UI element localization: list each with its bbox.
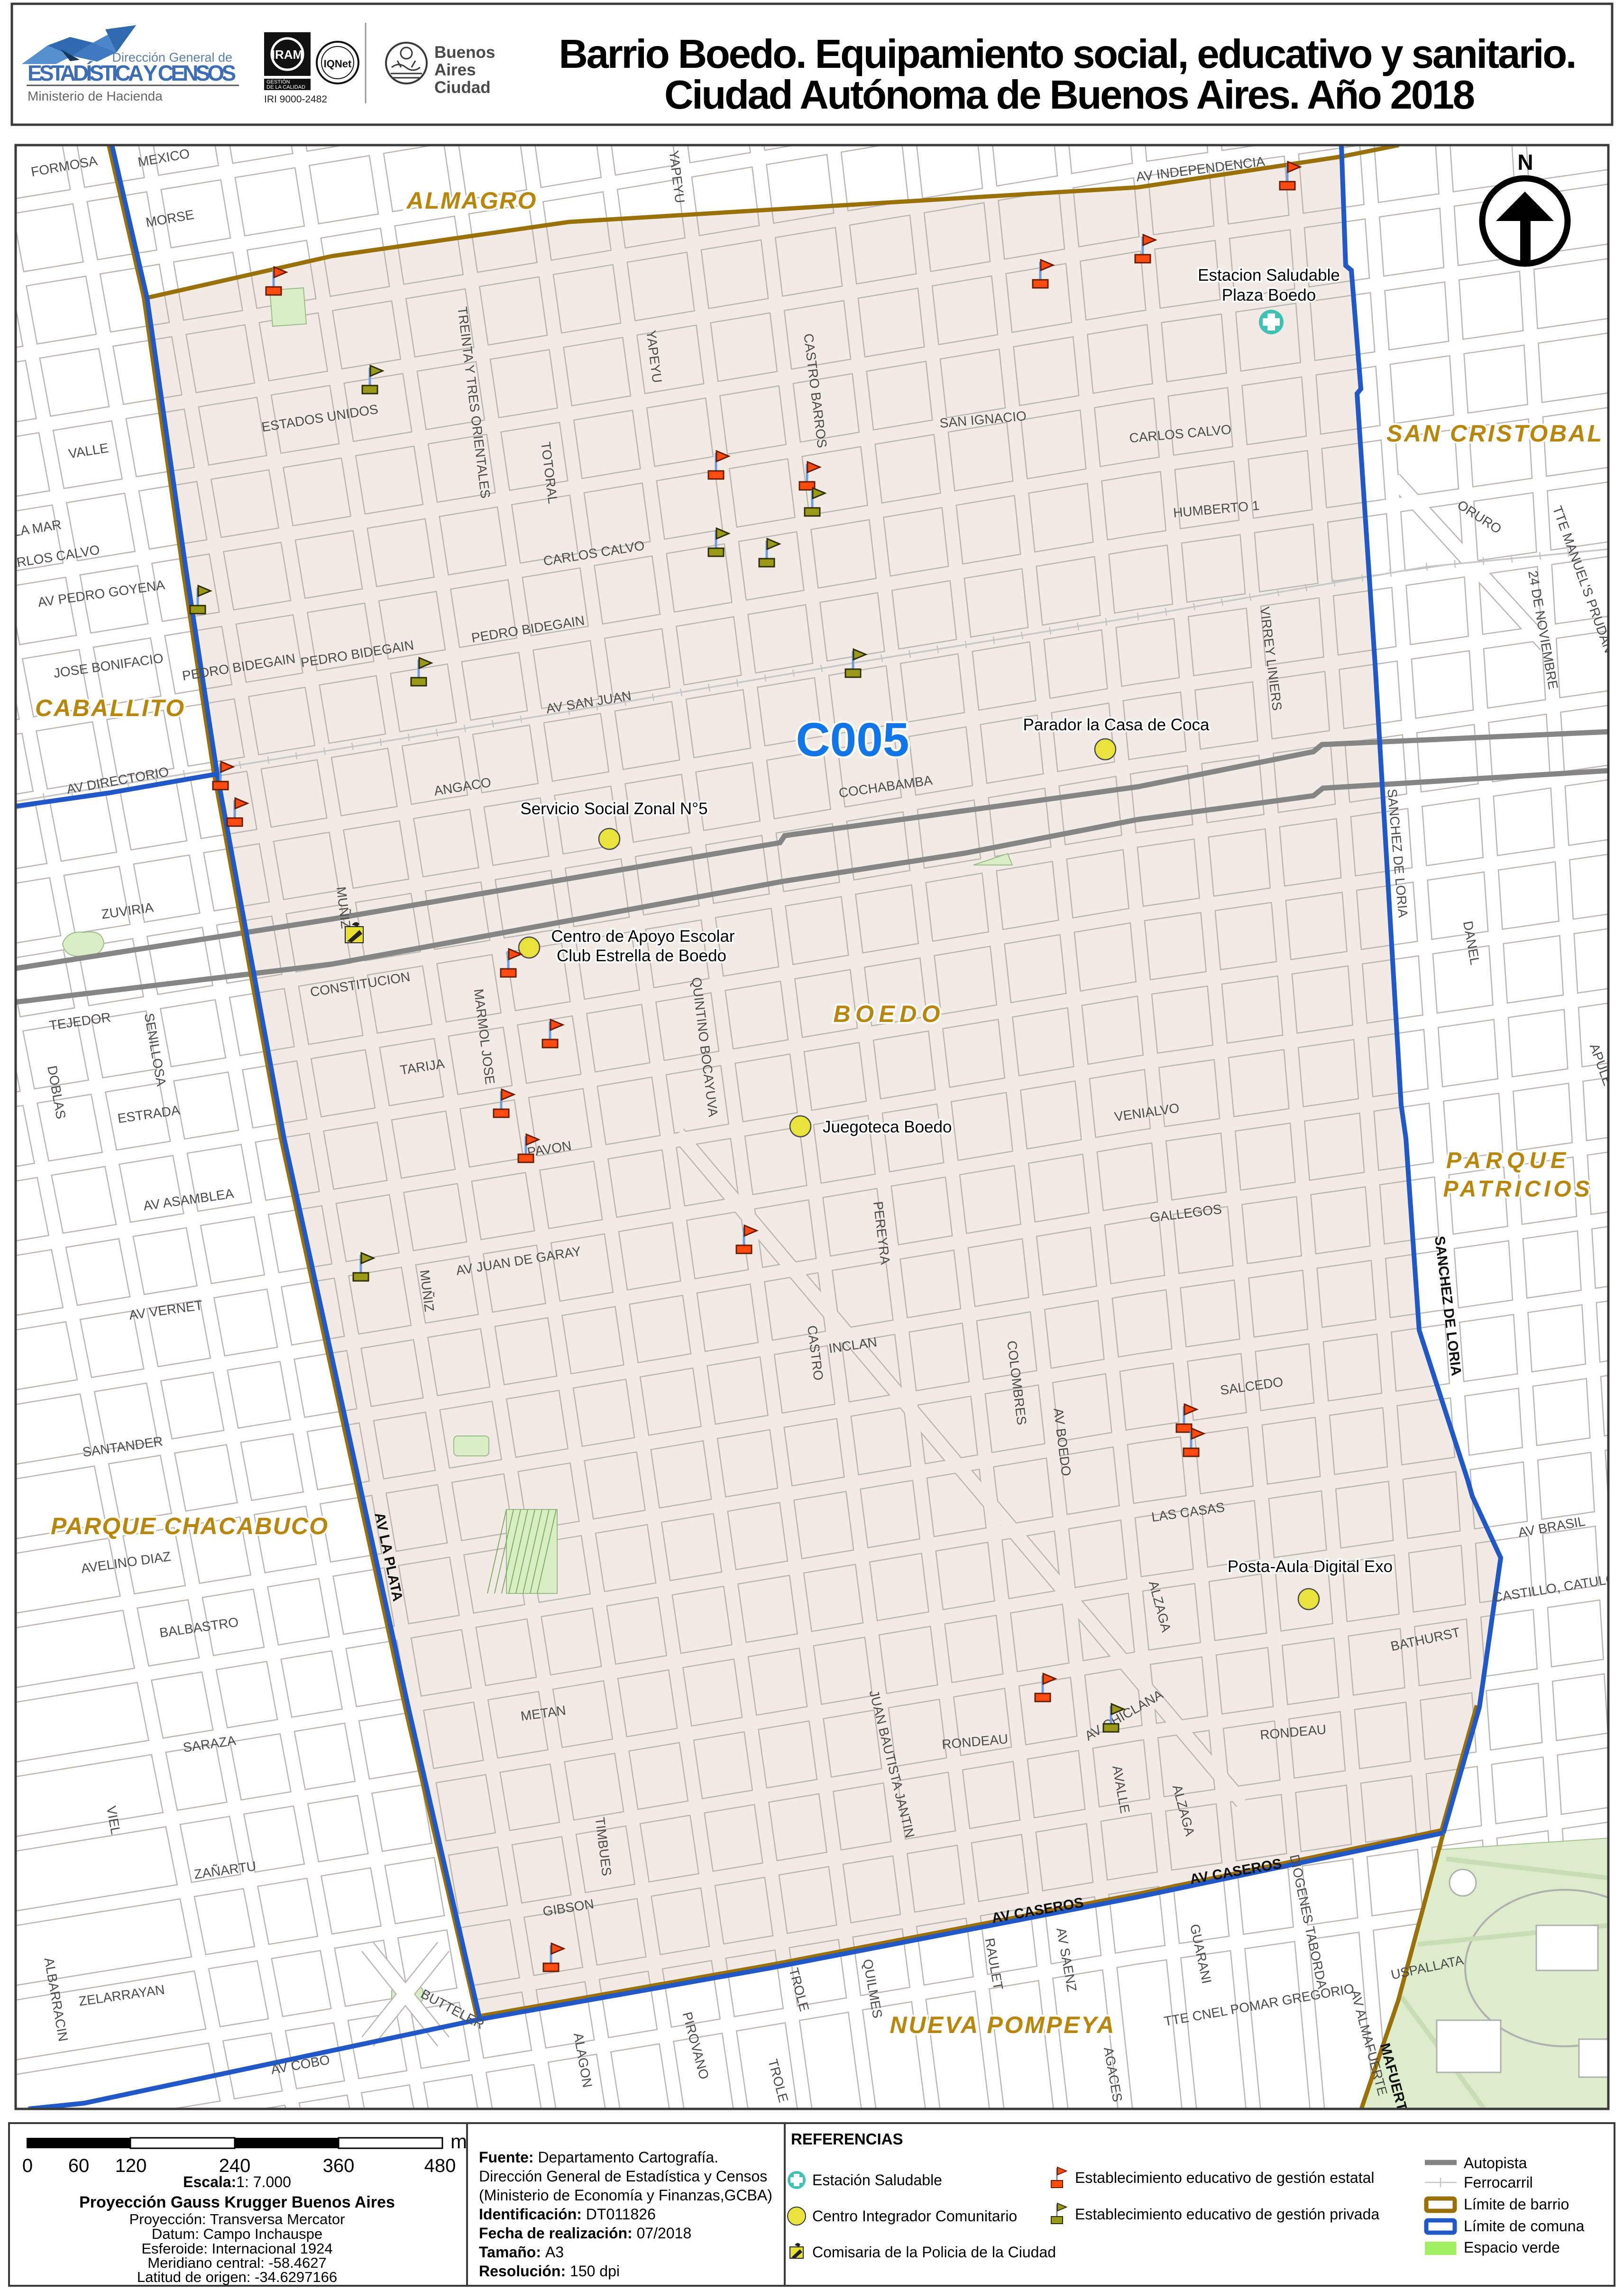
svg-text:IRI 9000-2482: IRI 9000-2482 [264, 94, 327, 105]
svg-text:Barrio Boedo. Equipamiento soc: Barrio Boedo. Equipamiento social, educa… [559, 32, 1577, 77]
svg-text:Identificación: DT011826: Identificación: DT011826 [479, 2206, 656, 2223]
svg-text:Ferrocarril: Ferrocarril [1464, 2174, 1533, 2191]
svg-text:Límite de comuna: Límite de comuna [1464, 2217, 1585, 2235]
svg-text:Ciudad: Ciudad [434, 78, 491, 97]
svg-text:Juegoteca Boedo: Juegoteca Boedo [823, 1118, 952, 1136]
svg-text:Buenos: Buenos [434, 43, 495, 62]
svg-text:Establecimiento educativo de g: Establecimiento educativo de gestión est… [1075, 2169, 1375, 2186]
svg-text:PARQUE CHACABUCO: PARQUE CHACABUCO [51, 1513, 328, 1539]
svg-text:Autopista: Autopista [1464, 2154, 1527, 2171]
svg-text:IRAM: IRAM [272, 47, 303, 62]
svg-text:Dirección General de Estadísti: Dirección General de Estadística y Censo… [479, 2168, 767, 2185]
svg-text:Establecimiento educativo de g: Establecimiento educativo de gestión pri… [1075, 2206, 1379, 2223]
svg-text:Aires: Aires [434, 61, 476, 79]
svg-text:Posta-Aula Digital Exo: Posta-Aula Digital Exo [1228, 1557, 1393, 1576]
svg-text:Tamaño: A3: Tamaño: A3 [479, 2244, 564, 2261]
svg-text:C005: C005 [796, 713, 909, 766]
svg-text:SAN CRISTOBAL: SAN CRISTOBAL [1386, 420, 1602, 447]
svg-text:Límite de barrio: Límite de barrio [1464, 2196, 1569, 2213]
svg-text:Plaza Boedo: Plaza Boedo [1222, 286, 1316, 304]
svg-text:Proyección: Transversa Mercato: Proyección: Transversa Mercator [129, 2211, 345, 2227]
svg-text:ESTADÍSTICA Y CENSOS: ESTADÍSTICA Y CENSOS [28, 61, 236, 85]
svg-text:(Ministerio de Economía y Fina: (Ministerio de Economía y Finanzas,GCBA) [479, 2187, 772, 2204]
svg-text:480: 480 [424, 2155, 456, 2176]
svg-text:Servicio Social Zonal N°5: Servicio Social Zonal N°5 [520, 800, 707, 818]
svg-text:Centro Integrador Comunitario: Centro Integrador Comunitario [812, 2208, 1017, 2225]
svg-text:Datum: Campo Inchauspe: Datum: Campo Inchauspe [152, 2226, 322, 2242]
svg-text:Estación Saludable: Estación Saludable [812, 2171, 942, 2189]
svg-text:Comisaria de la Policia de la: Comisaria de la Policia de la Ciudad [812, 2244, 1056, 2261]
svg-text:Fecha de realización: 07/2018: Fecha de realización: 07/2018 [479, 2225, 691, 2242]
svg-text:CABALLITO: CABALLITO [35, 695, 184, 721]
svg-text:Ministerio de Hacienda: Ministerio de Hacienda [28, 89, 163, 103]
svg-text:Proyección Gauss Krugger Bueno: Proyección Gauss Krugger Buenos Aires [79, 2193, 395, 2211]
svg-text:Estacion Saludable: Estacion Saludable [1198, 266, 1340, 285]
svg-text:IQNet: IQNet [324, 58, 352, 70]
svg-text:Resolución: 150 dpi: Resolución: 150 dpi [479, 2263, 620, 2280]
svg-text:BOEDO: BOEDO [834, 1001, 940, 1027]
svg-text:REFERENCIAS: REFERENCIAS [791, 2130, 903, 2148]
svg-text:Parador la Casa de Coca: Parador la Casa de Coca [1023, 716, 1210, 734]
svg-text:0: 0 [22, 2155, 33, 2176]
svg-text:120: 120 [115, 2155, 147, 2176]
svg-text:m: m [450, 2130, 467, 2153]
svg-text:Centro de Apoyo Escolar: Centro de Apoyo Escolar [551, 927, 735, 946]
svg-text:PATRICIOS: PATRICIOS [1443, 1177, 1590, 1202]
svg-text:N: N [1517, 150, 1533, 175]
svg-text:DE LA CALIDAD: DE LA CALIDAD [266, 84, 305, 90]
svg-text:Espacio verde: Espacio verde [1464, 2239, 1560, 2256]
svg-text:60: 60 [68, 2155, 90, 2176]
svg-text:Latitud de origen: -34.6297166: Latitud de origen: -34.6297166 [137, 2269, 337, 2285]
svg-text:360: 360 [323, 2155, 355, 2176]
svg-text:Ciudad Autónoma de Buenos Aire: Ciudad Autónoma de Buenos Aires. Año 201… [664, 73, 1475, 118]
svg-text:Escala:1: 7.000: Escala:1: 7.000 [183, 2173, 291, 2190]
svg-text:Club Estrella de Boedo: Club Estrella de Boedo [557, 947, 726, 965]
svg-text:Fuente: Departamento Cartograf: Fuente: Departamento Cartografía. [479, 2149, 718, 2166]
